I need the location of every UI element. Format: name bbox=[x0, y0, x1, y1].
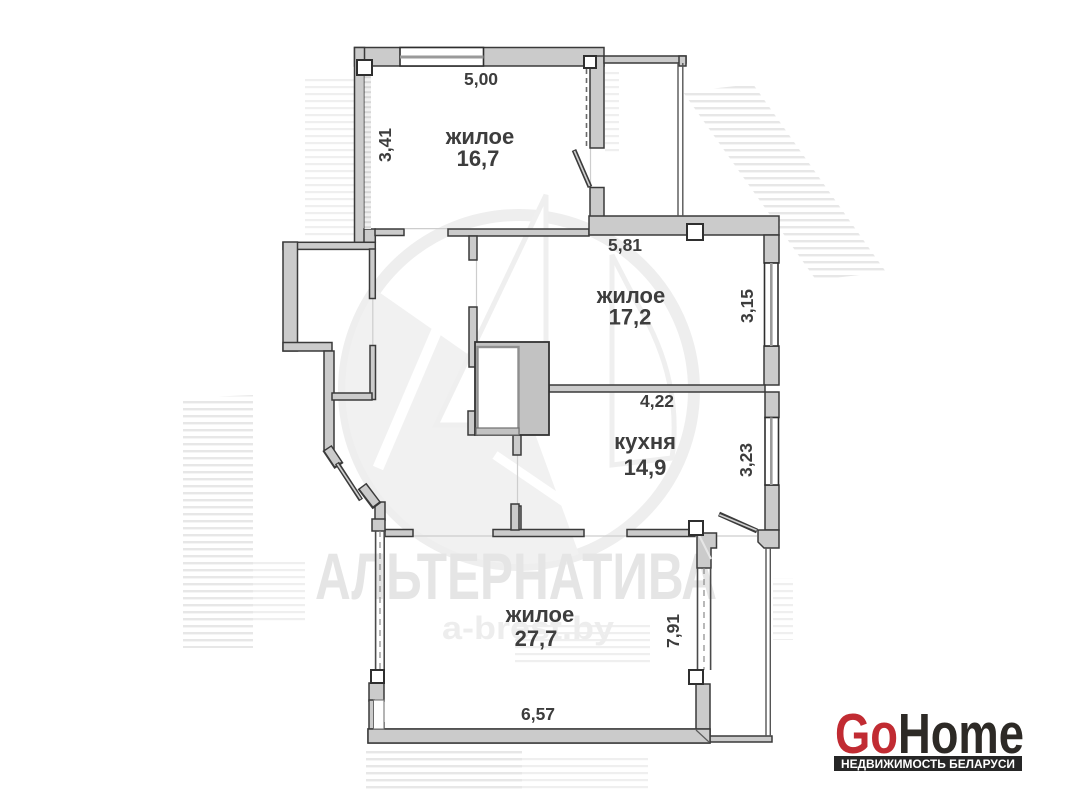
svg-text:3,41: 3,41 bbox=[375, 128, 395, 162]
svg-text:кухня: кухня bbox=[614, 429, 676, 454]
svg-text:5,81: 5,81 bbox=[608, 235, 642, 255]
svg-text:5,00: 5,00 bbox=[464, 69, 498, 89]
svg-text:4,22: 4,22 bbox=[640, 391, 674, 411]
svg-text:7,91: 7,91 bbox=[663, 614, 683, 648]
svg-text:6,57: 6,57 bbox=[521, 704, 555, 724]
svg-text:3,23: 3,23 bbox=[736, 443, 756, 477]
svg-text:14,9: 14,9 bbox=[624, 455, 667, 480]
svg-text:жилое: жилое bbox=[505, 602, 574, 627]
svg-text:17,2: 17,2 bbox=[609, 305, 652, 330]
svg-text:НЕДВИЖИМОСТЬ БЕЛАРУСИ: НЕДВИЖИМОСТЬ БЕЛАРУСИ bbox=[841, 759, 1015, 771]
svg-text:16,7: 16,7 bbox=[457, 146, 500, 171]
svg-text:27,7: 27,7 bbox=[515, 626, 558, 651]
svg-text:3,15: 3,15 bbox=[737, 289, 757, 323]
